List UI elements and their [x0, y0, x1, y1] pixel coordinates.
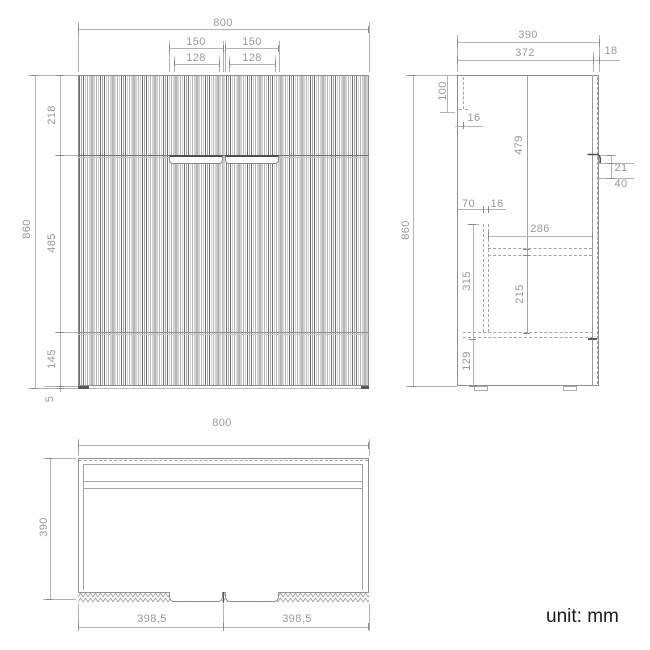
- side-shelf-hidden-bottom: [488, 255, 592, 256]
- plan-width-label: 800: [212, 417, 232, 429]
- plan-left-wall: [83, 464, 84, 590]
- front-handle-right: [225, 155, 279, 164]
- side-cavity-line: [527, 75, 528, 333]
- front-lower-section-label: 145: [46, 349, 58, 369]
- side-shelf-hidden-top: [488, 248, 592, 249]
- tick: [523, 255, 530, 256]
- dim-line-back-panel: [455, 126, 483, 127]
- tick: [57, 388, 64, 389]
- tick: [592, 232, 593, 239]
- dim-line-side-carcass-depth: [457, 60, 620, 61]
- plan-left-door-label: 398,5: [137, 613, 167, 625]
- tick: [174, 60, 175, 67]
- tick: [469, 339, 476, 340]
- tick: [523, 333, 530, 334]
- tick: [225, 45, 226, 52]
- side-door-bottom-mark: [588, 338, 597, 341]
- side-front-panel-label: 18: [604, 45, 617, 57]
- side-height-label: 860: [400, 220, 412, 240]
- dim-line-front-width: [78, 29, 369, 30]
- tick: [599, 57, 600, 64]
- tick: [409, 386, 416, 387]
- tick: [368, 623, 369, 630]
- dim-line-front-height: [35, 75, 36, 388]
- tick: [488, 232, 489, 239]
- tick: [457, 206, 458, 213]
- side-rail-thickness-label: 16: [490, 198, 503, 210]
- tick: [469, 386, 476, 387]
- tick: [278, 45, 279, 52]
- plan-rail-line-2: [83, 488, 362, 489]
- tick: [607, 178, 614, 179]
- dim-line-handle-vertical: [611, 155, 612, 178]
- ext-line: [440, 112, 455, 113]
- unit-note: unit: mm: [546, 606, 619, 628]
- side-carcass-depth-label: 372: [515, 47, 535, 59]
- tick: [78, 623, 79, 630]
- tick: [469, 224, 476, 225]
- tick: [46, 599, 53, 600]
- side-plinth-label: 129: [461, 351, 473, 371]
- dim-line-plan-width: [78, 445, 369, 446]
- tick: [57, 386, 64, 387]
- tick: [78, 442, 79, 449]
- dim-line-side-depth: [457, 42, 599, 43]
- tick: [523, 75, 530, 76]
- front-door-seam: [223, 75, 224, 385]
- front-door-section-label: 485: [46, 233, 58, 253]
- tick: [368, 26, 369, 33]
- tick: [457, 57, 458, 64]
- plan-right-wall: [362, 464, 363, 590]
- side-rail-hidden-left: [483, 224, 484, 332]
- side-shelf-depth-label: 286: [530, 223, 550, 235]
- tick: [57, 332, 64, 333]
- front-top-section-label: 218: [46, 105, 58, 125]
- dim-line-shelf-depth: [488, 236, 592, 237]
- tick: [483, 206, 484, 213]
- tick: [46, 458, 53, 459]
- tick: [223, 45, 224, 52]
- dim-line-cutout-left: [174, 64, 220, 65]
- dim-line-front-segments: [60, 75, 61, 392]
- technical-drawing: 800 150 150 128 128 860: [0, 0, 650, 650]
- tick: [457, 39, 458, 46]
- side-handle-recess-label: 21: [614, 162, 627, 174]
- dim-line-side-height: [413, 75, 414, 386]
- side-foot-front: [563, 386, 577, 392]
- tick: [593, 57, 594, 64]
- side-depth-label: 390: [518, 29, 538, 41]
- plan-right-door-label: 398,5: [282, 613, 312, 625]
- tick: [219, 60, 220, 67]
- tick: [409, 75, 416, 76]
- handle-width-right-label: 150: [242, 36, 262, 48]
- tick: [31, 388, 38, 389]
- plan-rail-line-1: [83, 481, 362, 482]
- plan-back-inner-face: [83, 464, 362, 465]
- side-back-panel-hidden-line: [463, 77, 464, 109]
- plan-center-divider-mark: [223, 592, 225, 603]
- tick: [169, 45, 170, 52]
- plan-back-hidden-line: [79, 460, 368, 461]
- handle-cutout-left-label: 128: [186, 52, 206, 64]
- tick: [463, 122, 464, 129]
- dim-line-cutout-right: [229, 64, 275, 65]
- tick: [599, 39, 600, 46]
- tick: [78, 26, 79, 33]
- side-rail-hidden-right: [488, 224, 489, 332]
- plan-depth-label: 390: [38, 517, 50, 537]
- front-handle-left: [169, 155, 223, 164]
- side-bottom-panel-hidden-bottom: [463, 337, 593, 338]
- tick: [488, 206, 489, 213]
- front-height-label: 860: [21, 219, 33, 239]
- handle-width-left-label: 150: [186, 36, 206, 48]
- side-back-panel-corner: [459, 109, 468, 110]
- front-bottom-edge-label: 5: [44, 396, 56, 403]
- side-back-panel-label: 16: [467, 112, 480, 124]
- tick: [368, 442, 369, 449]
- tick: [607, 155, 614, 156]
- dim-line-handle-left: [169, 48, 223, 49]
- tick: [229, 60, 230, 67]
- tick: [223, 623, 224, 630]
- front-door-bottom-line2: [78, 334, 369, 335]
- tick: [607, 163, 614, 164]
- plan-carcass: [78, 458, 369, 593]
- tick: [57, 155, 64, 156]
- side-under-shelf-label: 215: [514, 284, 526, 304]
- side-handle-zone-label: 40: [614, 178, 627, 190]
- side-lower-cavity-label: 315: [461, 271, 473, 291]
- front-width-label: 800: [213, 17, 233, 29]
- side-top-back-gap-label: 100: [437, 81, 449, 101]
- tick: [57, 75, 64, 76]
- front-foot-left: [78, 386, 90, 389]
- side-rail-offset-label: 70: [462, 198, 475, 210]
- tick: [523, 249, 530, 250]
- tick: [275, 60, 276, 67]
- front-foot-right: [361, 386, 369, 389]
- handle-cutout-right-label: 128: [242, 52, 262, 64]
- front-bottom-edge-line: [78, 388, 369, 389]
- dim-line-handle-right: [225, 48, 279, 49]
- plan-handle-notch-left: [169, 592, 223, 602]
- tick: [31, 75, 38, 76]
- front-door-bottom-line: [78, 332, 369, 333]
- plan-handle-notch-right: [225, 592, 279, 602]
- side-upper-cavity-label: 479: [513, 135, 525, 155]
